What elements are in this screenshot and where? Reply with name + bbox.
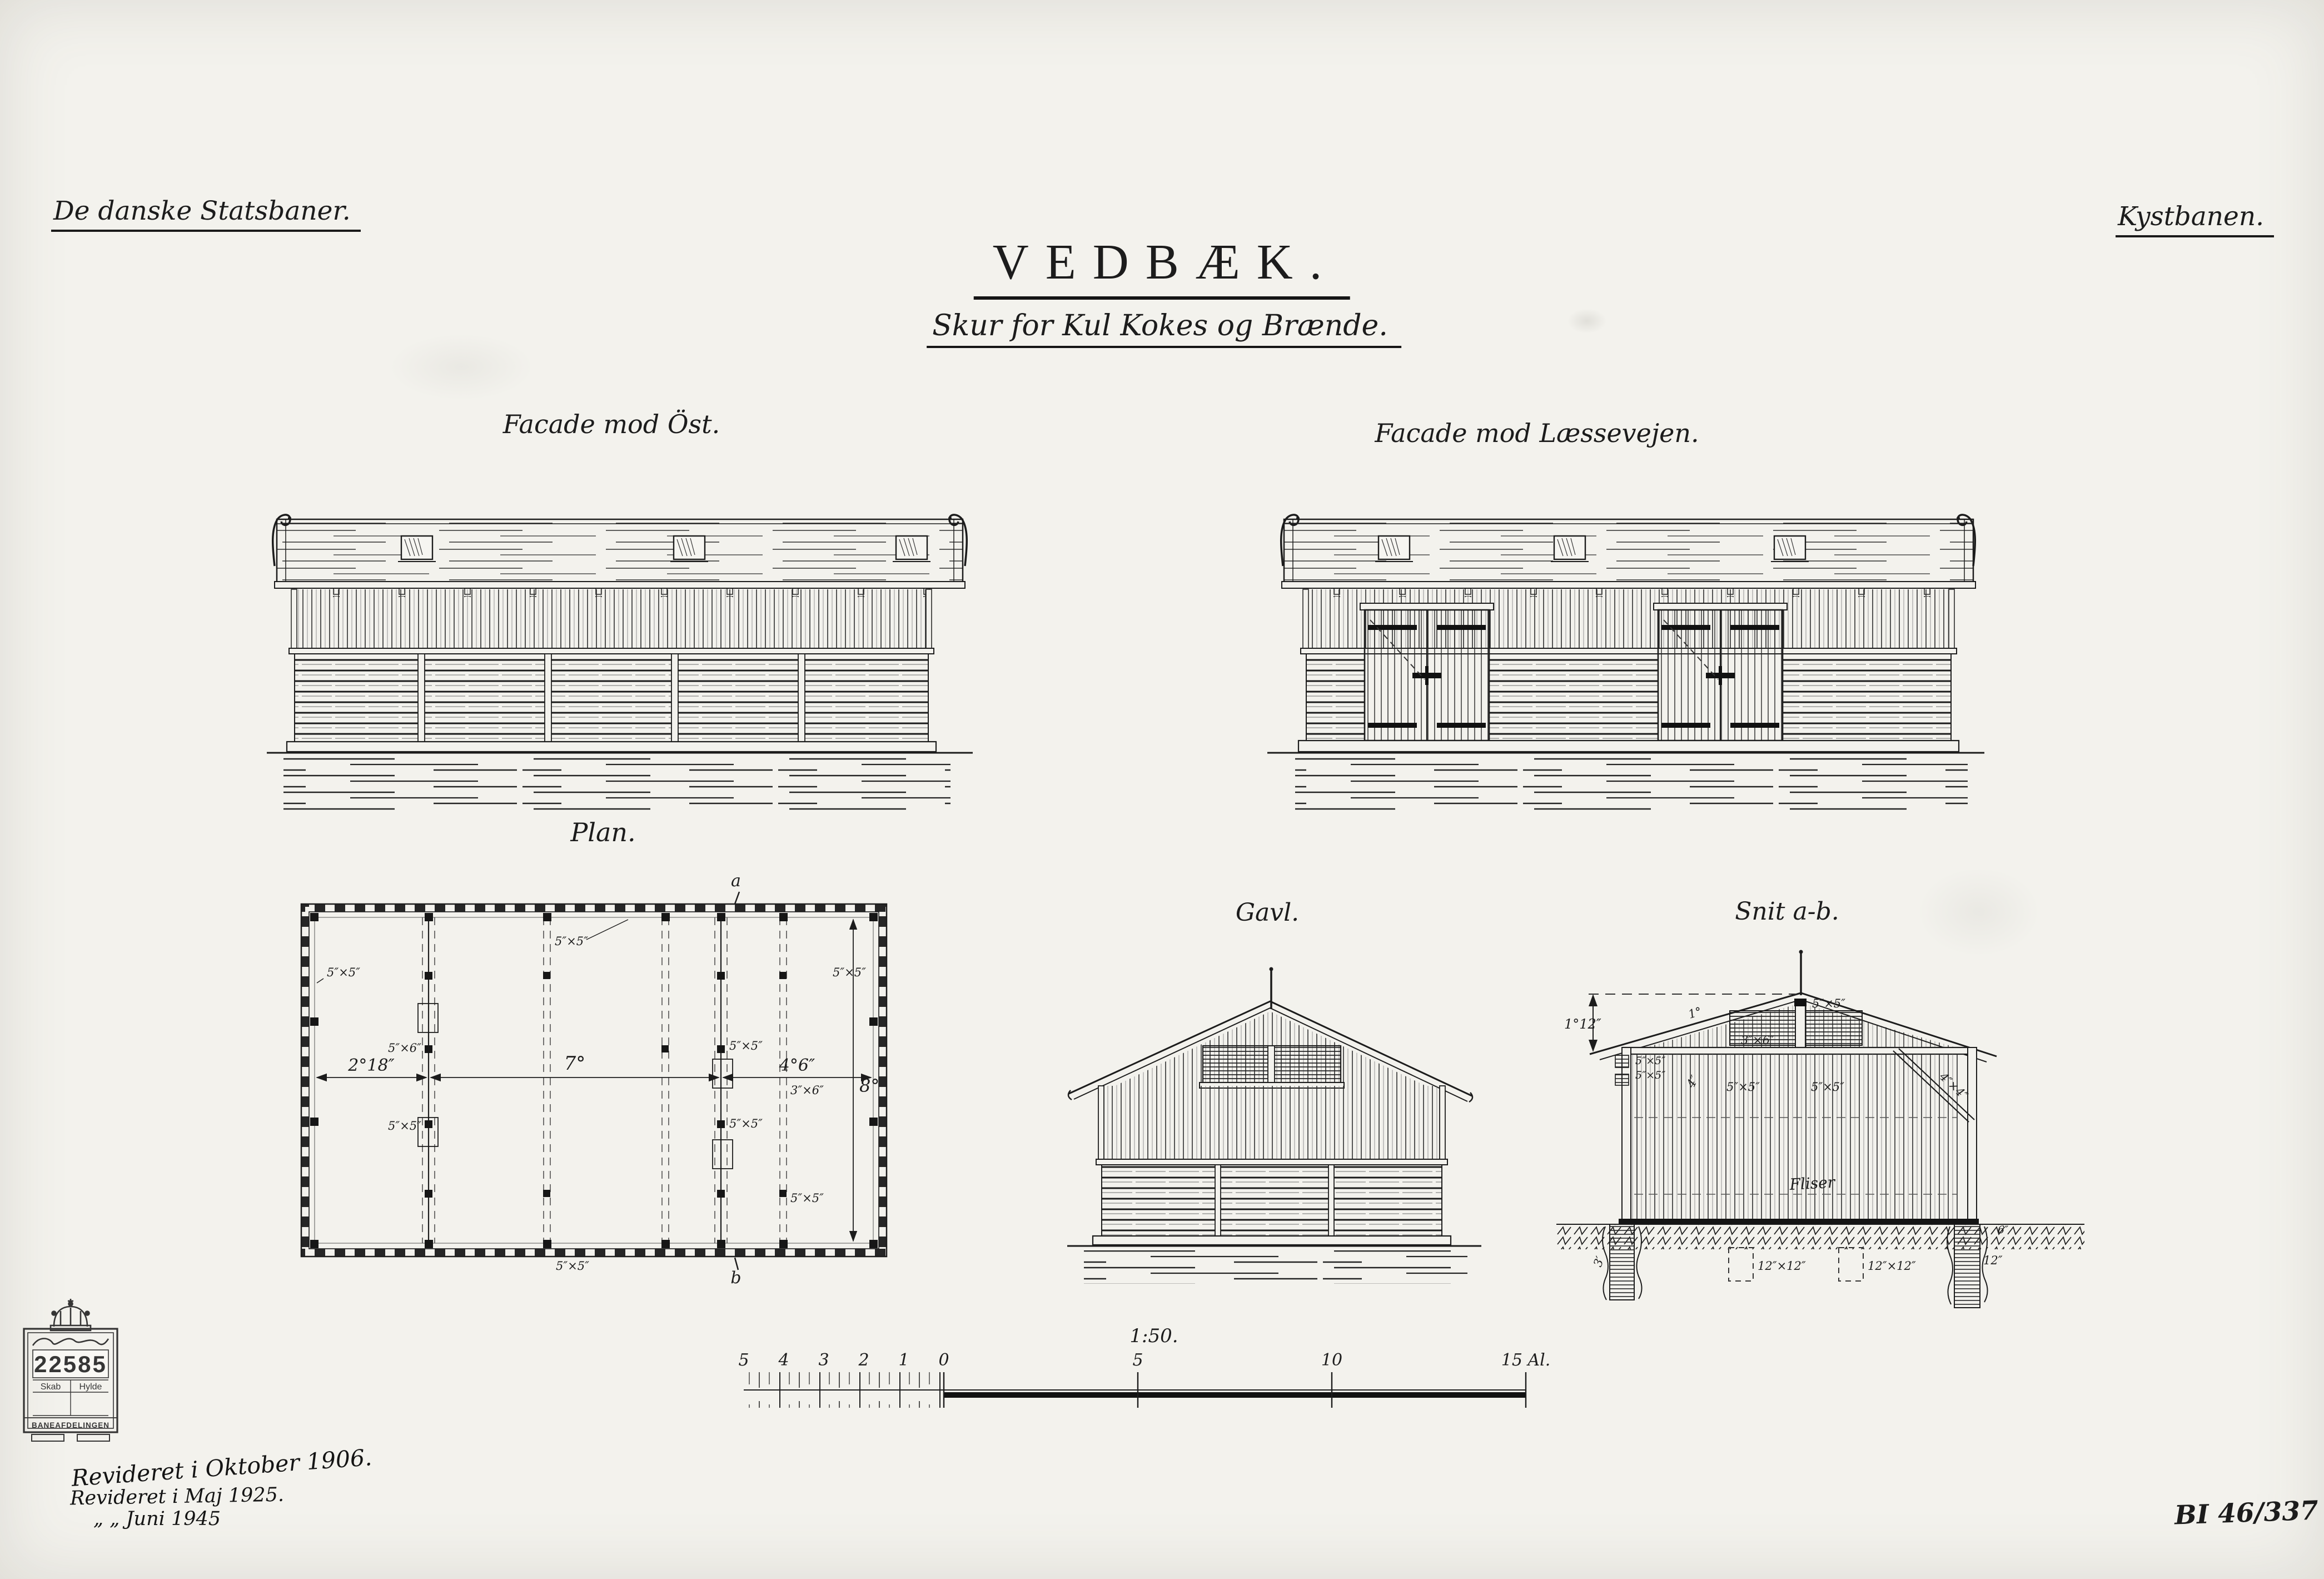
- archive-stamp: 22585 Skab Hylde BANEAFDELINGEN: [19, 1297, 125, 1446]
- crown-icon: [51, 1299, 91, 1330]
- vent-window: [1771, 536, 1809, 562]
- dim-label: 1°12″: [1564, 1016, 1601, 1032]
- company-title: De danske Statsbaner.: [51, 196, 361, 232]
- post-size-label: 5″×5″: [833, 966, 866, 979]
- beam-size-label: 3″×6″: [1741, 1034, 1774, 1047]
- sill-band: [289, 648, 934, 654]
- section-label: Snit a-b.: [1735, 897, 1839, 926]
- loading-facade-drawing: [1267, 489, 1984, 823]
- sill-band: [1096, 1159, 1447, 1165]
- stamp-number: 22585: [34, 1351, 107, 1377]
- wall-post: [1968, 1047, 1977, 1220]
- revision-note-3: „ „ Juni 1945: [93, 1508, 221, 1530]
- plinth: [1093, 1236, 1451, 1245]
- tie-beam: [1623, 1047, 1969, 1054]
- post-size-label: 5″×5″: [388, 1119, 421, 1133]
- ground-shading: [1084, 1250, 1467, 1284]
- svg-text:10: 10: [1321, 1350, 1342, 1370]
- svg-text:5: 5: [738, 1350, 749, 1370]
- scale-bar: 1:50. 5 4 3 2 1 0 5 10 15 Al.: [739, 1323, 1562, 1418]
- dim-label: 7°: [564, 1052, 586, 1075]
- svg-text:15 Al.: 15 Al.: [1501, 1350, 1551, 1370]
- wall-right: [879, 904, 887, 1257]
- dim-label: 1°: [1686, 1005, 1703, 1021]
- post-size-label: 5″×5″: [1812, 997, 1845, 1010]
- pier-size-label: 12″×12″: [1758, 1259, 1806, 1273]
- slat-bay: [1306, 654, 1365, 742]
- plinth: [287, 742, 936, 752]
- ground-shading: [1295, 757, 1968, 813]
- wall-top: [301, 904, 887, 912]
- pier-size-label: 12″×12″: [1868, 1259, 1916, 1273]
- plan-drawing: a: [295, 856, 900, 1290]
- stamp-col-right: Hylde: [79, 1382, 102, 1392]
- dim-label: 6″: [1998, 1224, 2008, 1236]
- floor-sill: [1619, 1219, 1979, 1224]
- slat-bay: [1783, 654, 1951, 742]
- paper-stain: [389, 334, 534, 400]
- loading-facade-label: Facade mod Læssevejen.: [1375, 418, 1699, 448]
- dim-label: 4°6″: [779, 1056, 815, 1075]
- svg-text:2: 2: [858, 1350, 869, 1370]
- floor-note: Fliser: [1789, 1173, 1837, 1194]
- strap-hinge: [1730, 625, 1779, 630]
- roof-fascia: [275, 519, 965, 588]
- svg-text:4: 4: [778, 1350, 789, 1370]
- gable-drawing: [1067, 965, 1481, 1287]
- svg-text:1: 1: [898, 1350, 909, 1370]
- post-size-label: 5″×5″: [327, 966, 360, 979]
- gable-louver: [1200, 1046, 1344, 1088]
- strap-hinge: [1368, 625, 1417, 630]
- double-door: [1654, 603, 1787, 741]
- opening-symbols: [418, 1004, 733, 1169]
- wall-bottom: [301, 1249, 887, 1257]
- pier-depth-label: 3′: [1591, 1254, 1607, 1268]
- slat-band: [1102, 1165, 1442, 1236]
- wall-post: [1622, 1047, 1631, 1220]
- gable-label: Gavl.: [1236, 898, 1299, 927]
- post-size-label: 5″×5″: [555, 935, 588, 948]
- strap-hinge: [1437, 625, 1486, 630]
- post-size-label: 5″×5″: [556, 1259, 589, 1273]
- pier-size-label: 12″: [1983, 1254, 2003, 1267]
- scale-ratio-label: 1:50.: [1129, 1325, 1178, 1347]
- post-size-label: 5″×5″: [1635, 1055, 1665, 1067]
- vent-window: [670, 536, 708, 562]
- strap-hinge: [1437, 723, 1486, 728]
- post-size-label: 5″×5″: [729, 1117, 763, 1130]
- double-door: [1360, 603, 1494, 741]
- post-size-label: 5″×5″: [1635, 1069, 1665, 1081]
- east-facade-label: Facade mod Öst.: [503, 409, 720, 439]
- post-size-label: 5″×5″: [729, 1039, 763, 1052]
- vent-window: [1551, 536, 1589, 562]
- paper-stain: [1567, 309, 1606, 334]
- plinth: [1298, 741, 1959, 752]
- vent-window: [1375, 536, 1413, 562]
- post-size-label: 5″×5″: [1726, 1080, 1760, 1094]
- king-post: [1795, 1000, 1805, 1049]
- slat-bay: [1489, 654, 1658, 742]
- ground-shading: [283, 757, 950, 813]
- railway-line-title: Kystbanen.: [2116, 201, 2274, 237]
- wall-left: [301, 904, 309, 1257]
- svg-text:5: 5: [1132, 1350, 1143, 1370]
- dim-label: 8°: [859, 1075, 879, 1096]
- revision-note-2: Revideret i Maj 1925.: [70, 1484, 285, 1510]
- paper-stain: [1918, 867, 2040, 956]
- strap-hinge: [1661, 723, 1710, 728]
- scale-bar-fill: [944, 1392, 1526, 1398]
- stud-size-label: 3″×6″: [790, 1084, 824, 1097]
- dim-label: 2°18″: [347, 1056, 395, 1075]
- drawing-sheet: De danske Statsbaner. Kystbanen. VEDBÆK.…: [0, 0, 2324, 1579]
- dashed-partition: [544, 917, 787, 1243]
- board-siding-band: [291, 589, 932, 648]
- post-size-label: 5″×5″: [1811, 1080, 1844, 1094]
- post-size-label: 5″×6″: [388, 1041, 421, 1055]
- board-siding-band: [1098, 1086, 1445, 1159]
- stamp-col-left: Skab: [41, 1382, 61, 1392]
- east-facade-drawing: [267, 489, 973, 823]
- strap-hinge: [1368, 723, 1417, 728]
- slat-band: [295, 654, 928, 742]
- dimension-lines: [317, 920, 871, 1241]
- section-marker-a: a: [731, 871, 741, 891]
- section-marker-b: b: [730, 1268, 741, 1288]
- page-subtitle: Skur for Kul Kokes og Brænde.: [927, 309, 1401, 348]
- svg-text:3: 3: [818, 1350, 829, 1370]
- vent-window: [893, 536, 930, 562]
- page-title: VEDBÆK.: [974, 234, 1350, 300]
- pier-outline: [1839, 1248, 1863, 1281]
- stamp-flourish: [33, 1339, 108, 1346]
- post-size-label: 5″×5″: [790, 1191, 824, 1205]
- vent-window: [398, 536, 436, 562]
- svg-text:0: 0: [938, 1350, 949, 1370]
- section-drawing: 1°12″ 1° 5″×5″ 5″×5″ 5″×5″ 4″ 5″×5″ 5″×5…: [1556, 945, 2084, 1323]
- strap-hinge: [1661, 625, 1710, 630]
- strap-hinge: [1730, 723, 1779, 728]
- pier-outline: [1729, 1248, 1753, 1281]
- document-number: BI 46/337: [2174, 1496, 2319, 1531]
- stamp-footer: BANEAFDELINGEN: [32, 1421, 110, 1429]
- scale-tick-labels: 5 4 3 2 1 0 5 10 15 Al.: [738, 1350, 1550, 1370]
